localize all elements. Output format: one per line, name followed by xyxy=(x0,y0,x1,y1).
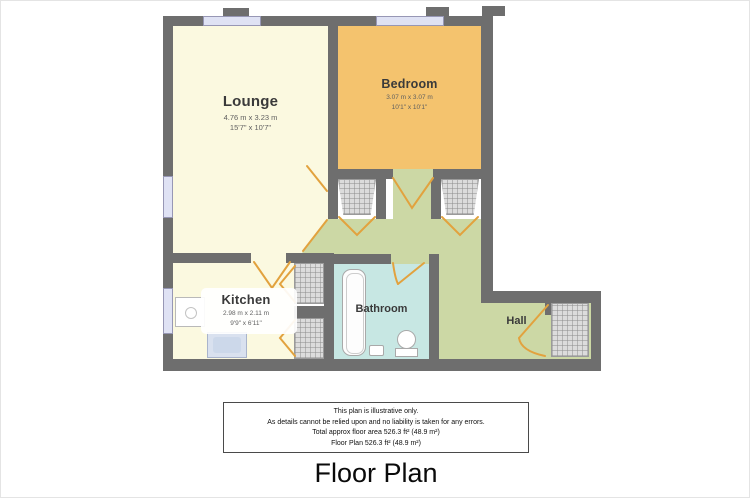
basin-icon xyxy=(369,345,384,356)
lounge-dims-metric: 4.76 m x 3.23 m xyxy=(173,113,328,123)
bedroom-dims-imperial: 10'1" x 10'1" xyxy=(338,103,481,113)
window-lounge-top xyxy=(203,16,261,26)
hall-label: Hall xyxy=(479,315,554,327)
wall-bathroom-top xyxy=(334,254,391,264)
wall-lounge-bedroom xyxy=(328,26,338,179)
closet-bedroom-left xyxy=(338,179,376,215)
lounge-floor xyxy=(173,26,328,263)
kitchen-dims-imperial: 9'9" x 6'11" xyxy=(181,319,311,329)
wall-right xyxy=(481,16,493,303)
bedroom-dims-metric: 3.07 m x 3.07 m xyxy=(338,93,481,103)
lounge-dims-imperial: 15'7" x 10'7" xyxy=(173,123,328,133)
wall-bedroom-bottom-a xyxy=(338,169,393,179)
window-bedroom-top xyxy=(376,16,444,26)
wall-hall-closet-stub xyxy=(545,303,551,315)
hall-name: Hall xyxy=(479,315,554,327)
kitchen-label: Kitchen 2.98 m x 2.11 m 9'9" x 6'11" xyxy=(181,292,311,329)
lounge-name: Lounge xyxy=(173,93,328,110)
closet-hall xyxy=(551,303,589,357)
wall-closet-left-side xyxy=(328,179,338,219)
disclaimer-line-4: Floor Plan 526.3 ft² (48.9 m²) xyxy=(226,439,526,450)
kitchen-dims-metric: 2.98 m x 2.11 m xyxy=(181,309,311,319)
wall-bottom xyxy=(163,359,601,371)
bathroom-label: Bathroom xyxy=(334,303,429,315)
wall-stub-top-3 xyxy=(482,6,505,16)
floor-plan-page: Lounge 4.76 m x 3.23 m 15'7" x 10'7" Bed… xyxy=(0,0,750,498)
bathroom-name: Bathroom xyxy=(334,303,429,315)
toilet-tank-icon xyxy=(395,348,418,357)
page-title: Floor Plan xyxy=(1,458,750,489)
disclaimer-line-3: Total approx floor area 526.3 ft² (48.9 … xyxy=(226,428,526,439)
lounge-label: Lounge 4.76 m x 3.23 m 15'7" x 10'7" xyxy=(173,93,328,133)
hall-floor-passage xyxy=(393,169,433,219)
window-kitchen-left xyxy=(163,288,173,334)
wall-hall-ext-top xyxy=(481,291,601,303)
wall-kitchen-top-a xyxy=(173,253,251,263)
wall-hall-ext-right xyxy=(591,291,601,371)
kitchen-sink-basin-icon xyxy=(213,337,241,353)
wall-bathroom-right xyxy=(429,254,439,359)
toilet-icon xyxy=(397,330,416,349)
hall-floor-corridor xyxy=(439,254,481,359)
wall-stub-top-2 xyxy=(426,7,449,16)
disclaimer-line-1: This plan is illustrative only. xyxy=(226,407,526,418)
bedroom-name: Bedroom xyxy=(338,77,481,91)
wall-closetR-left xyxy=(431,179,441,219)
kitchen-sink-icon xyxy=(207,332,247,358)
closet-bedroom-right xyxy=(441,179,479,215)
disclaimer-line-2: As details cannot be relied upon and no … xyxy=(226,418,526,429)
disclaimer-box: This plan is illustrative only. As detai… xyxy=(223,402,529,453)
bedroom-label: Bedroom 3.07 m x 3.07 m 10'1" x 10'1" xyxy=(338,77,481,113)
kitchen-name: Kitchen xyxy=(181,292,311,307)
window-lounge-left xyxy=(163,176,173,218)
wall-closetL-right xyxy=(376,179,386,219)
wall-bedroom-bottom-b xyxy=(433,169,481,179)
